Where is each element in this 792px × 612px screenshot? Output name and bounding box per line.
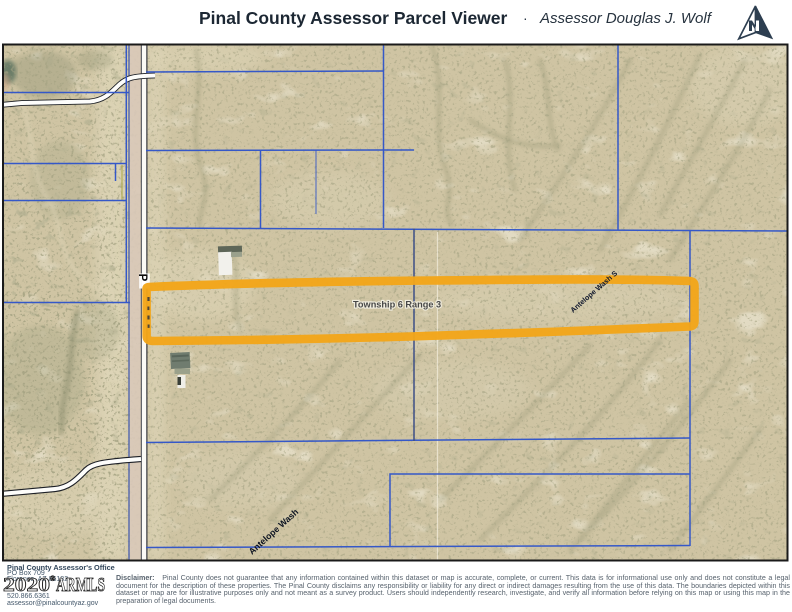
svg-text:2020: 2020 xyxy=(3,574,50,596)
svg-text:Township 6 Range 3: Township 6 Range 3 xyxy=(353,299,441,309)
svg-text:P: P xyxy=(136,274,148,282)
svg-text:ARMLS: ARMLS xyxy=(56,574,105,596)
